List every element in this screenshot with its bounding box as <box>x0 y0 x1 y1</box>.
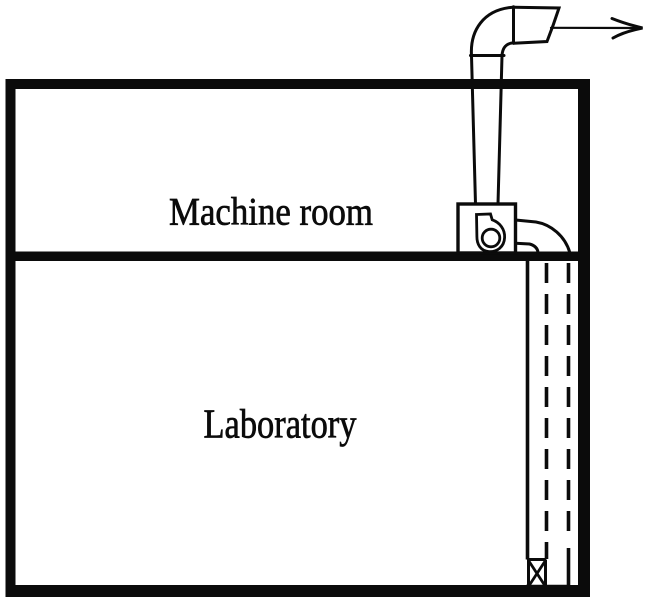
svg-text:Machine room: Machine room <box>169 191 373 234</box>
svg-text:Laboratory: Laboratory <box>204 401 357 447</box>
